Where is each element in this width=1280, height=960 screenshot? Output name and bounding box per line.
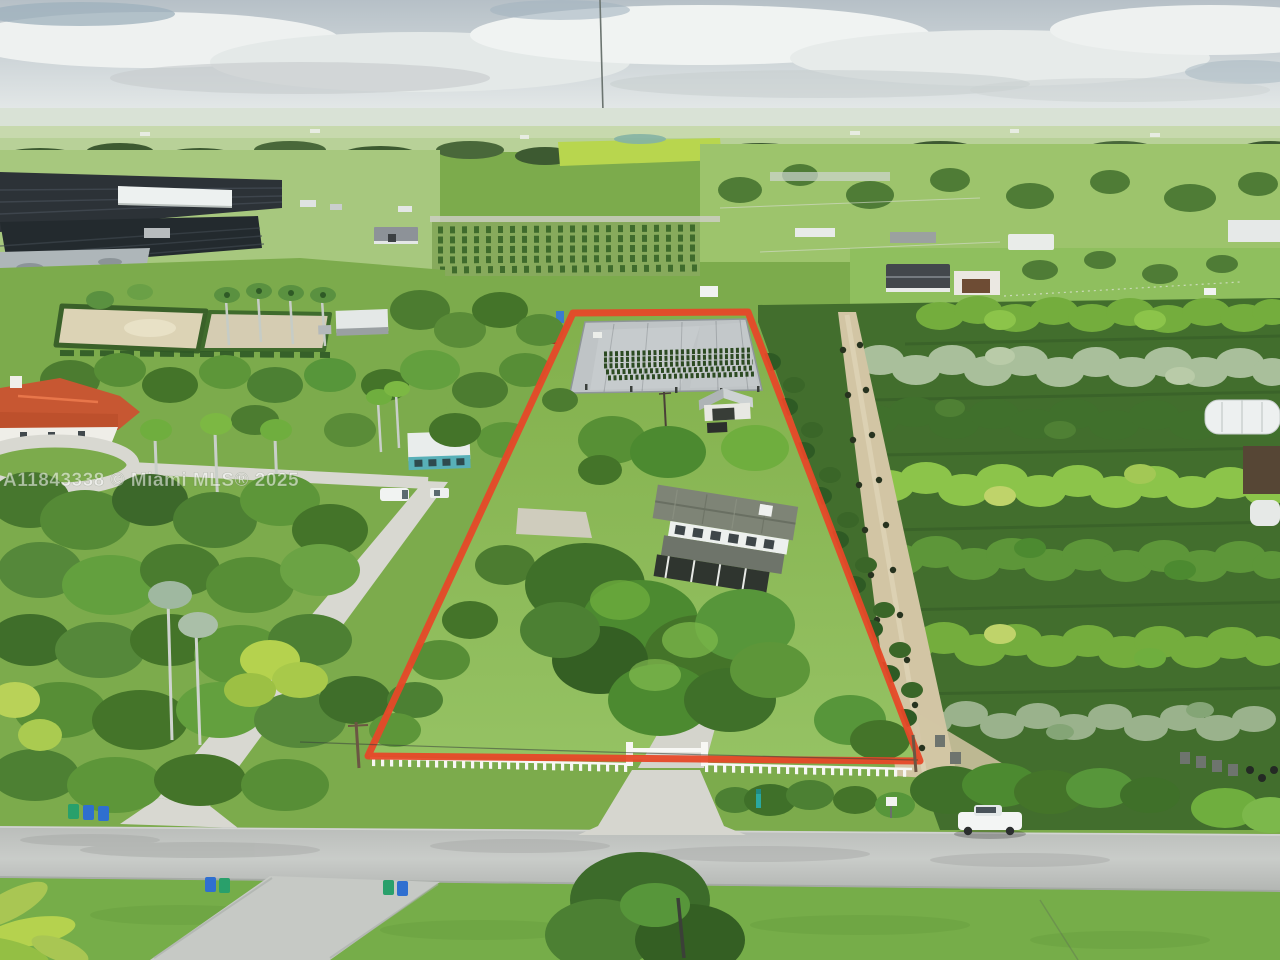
aerial-photo: A11843338 © Miami MLS® 2025 — [0, 0, 1280, 960]
mls-watermark: A11843338 © Miami MLS® 2025 — [3, 470, 299, 491]
white-van — [380, 488, 409, 501]
barn — [954, 271, 1000, 295]
orchard-rows — [430, 216, 720, 297]
white-box-truck — [700, 286, 718, 297]
right-pastures — [700, 144, 1280, 306]
sky — [0, 0, 1280, 125]
distant-pond — [614, 134, 666, 144]
gray-roof-house — [886, 264, 950, 292]
concrete-pad — [516, 508, 592, 538]
riding-arena — [56, 306, 330, 355]
growing-mat — [570, 319, 762, 394]
teal-marker — [756, 789, 761, 808]
small-house — [374, 227, 418, 244]
white-car — [430, 488, 449, 498]
distant-truck — [1204, 288, 1216, 295]
